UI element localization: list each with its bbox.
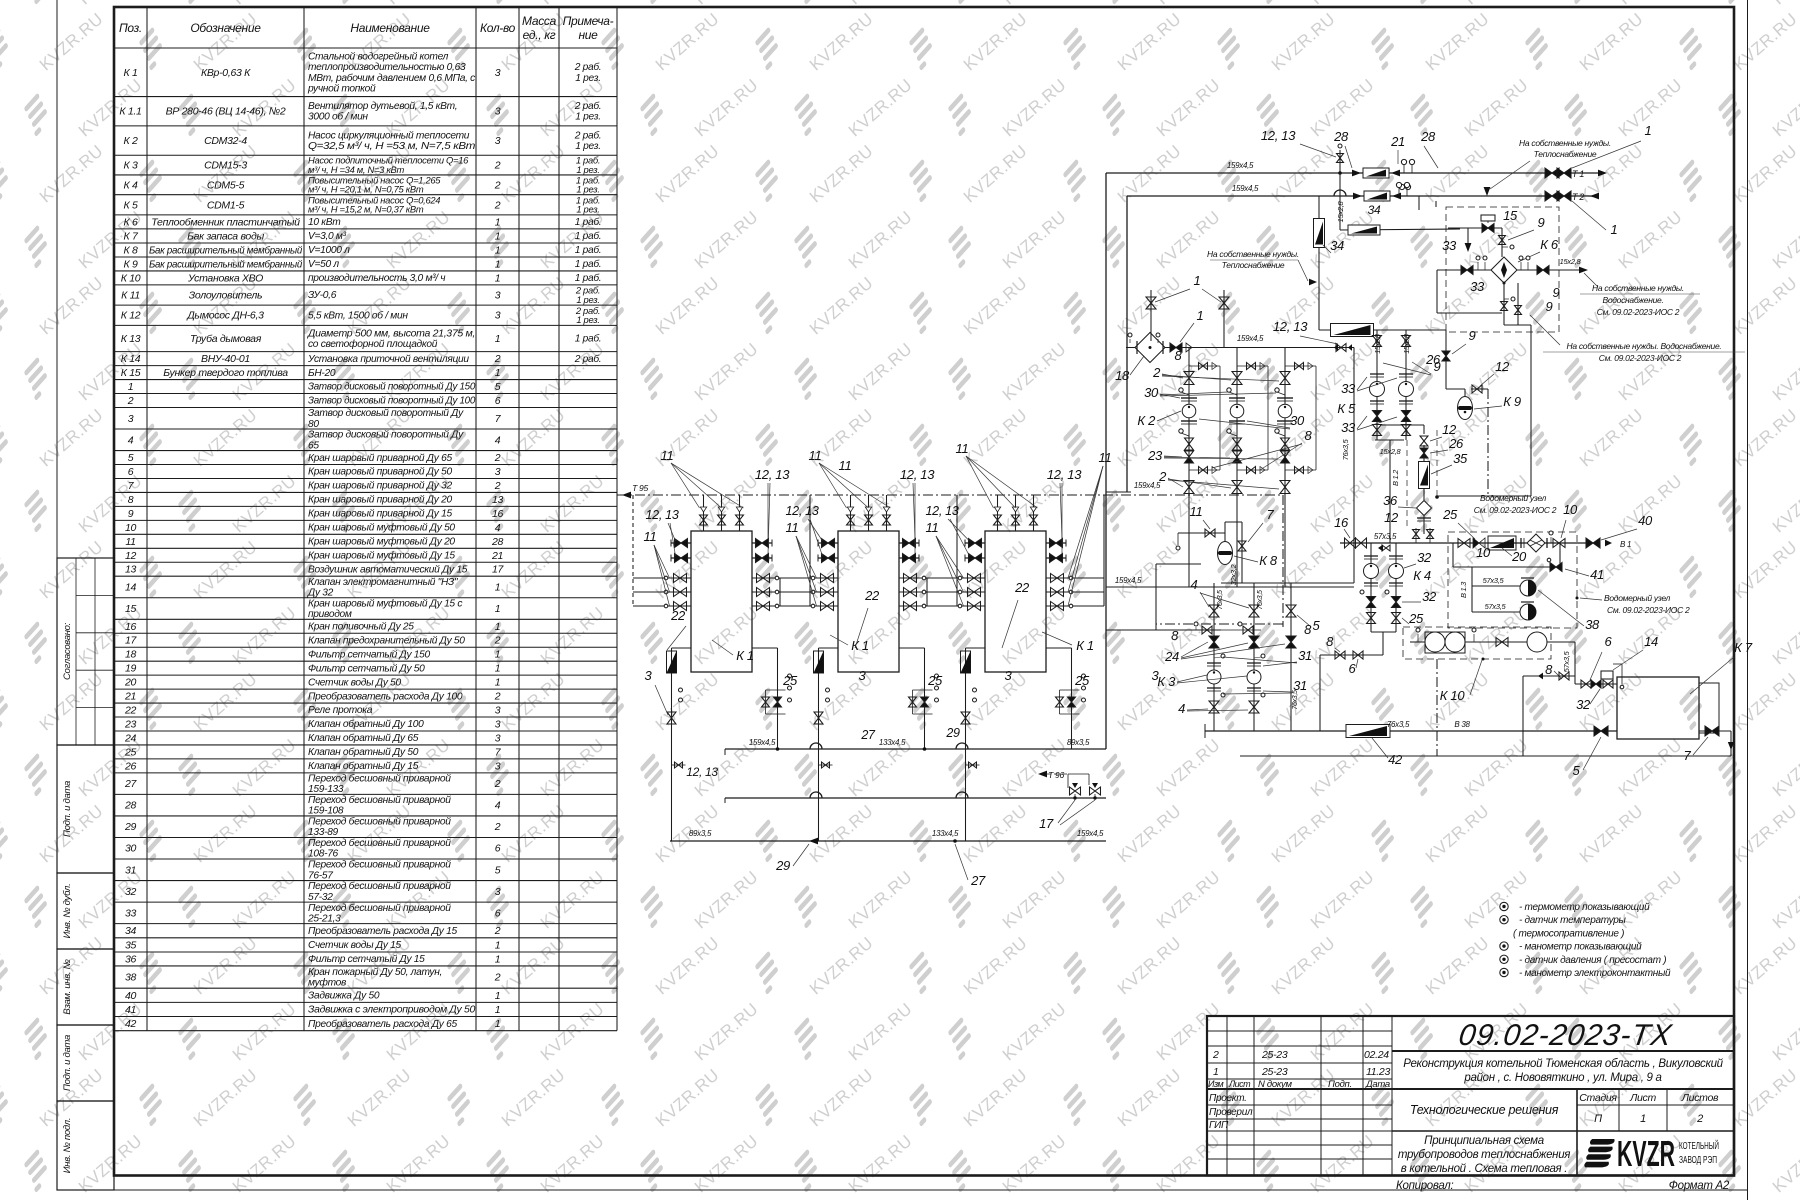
svg-text:5,5 кВт, 1500 об / мин: 5,5 кВт, 1500 об / мин — [308, 309, 408, 321]
svg-text:22: 22 — [1014, 580, 1030, 595]
svg-text:159х4,5: 159х4,5 — [1077, 829, 1104, 838]
svg-text:К 7: К 7 — [1734, 640, 1753, 655]
svg-text:6: 6 — [1605, 634, 1613, 649]
svg-text:К 4: К 4 — [1413, 568, 1431, 583]
svg-text:3: 3 — [495, 718, 501, 730]
svg-text:Затвор дисковый поворотный Ду: Затвор дисковый поворотный Ду — [308, 430, 464, 441]
svg-text:20: 20 — [124, 677, 137, 689]
svg-text:Дата: Дата — [1365, 1079, 1390, 1090]
svg-text:8: 8 — [1326, 634, 1334, 649]
svg-text:- датчик температуры: - датчик температуры — [1519, 915, 1627, 926]
svg-text:м³/ ч, Н =15,2 м, N=0,37 кВ: м³/ ч, Н =15,2 м, N=0,37 кВт — [308, 204, 424, 215]
svg-text:15х2,8: 15х2,8 — [1375, 334, 1382, 354]
svg-text:25: 25 — [1442, 507, 1458, 522]
svg-text:4: 4 — [495, 434, 501, 446]
svg-text:ед., кг: ед., кг — [523, 28, 556, 42]
svg-text:2: 2 — [494, 160, 501, 172]
svg-text:11: 11 — [839, 458, 852, 473]
svg-text:8: 8 — [1305, 428, 1313, 443]
svg-text:15: 15 — [125, 603, 137, 615]
svg-text:25-23: 25-23 — [1261, 1049, 1288, 1061]
svg-text:Воздушник автоматический Ду 15: Воздушник автоматический Ду 15 — [308, 564, 468, 575]
svg-text:31: 31 — [125, 864, 136, 876]
svg-text:К 15: К 15 — [121, 367, 141, 379]
svg-text:1 рез.: 1 рез. — [575, 112, 600, 123]
svg-text:1: 1 — [495, 953, 501, 965]
svg-text:Наименование: Наименование — [350, 21, 430, 35]
svg-text:Затвор дисковый поворотный Ду: Затвор дисковый поворотный Ду 150 — [308, 382, 476, 393]
svg-text:( термосопративление ): ( термосопративление ) — [1513, 928, 1624, 939]
svg-text:муфтов: муфтов — [308, 977, 347, 989]
svg-text:Труба дымовая: Труба дымовая — [190, 333, 262, 345]
svg-text:Проверил: Проверил — [1209, 1107, 1253, 1118]
svg-text:Кран шаровый муфтовый Ду 15: Кран шаровый муфтовый Ду 15 — [308, 549, 455, 561]
svg-text:1 рез.: 1 рез. — [575, 141, 600, 152]
svg-text:2: 2 — [494, 691, 501, 703]
svg-text:См. 09.02-2023-ИОС 2: См. 09.02-2023-ИОС 2 — [1607, 605, 1690, 615]
svg-text:27: 27 — [860, 728, 876, 742]
svg-text:Бак расширительный мембранный: Бак расширительный мембранный — [149, 244, 302, 256]
svg-text:8: 8 — [1545, 662, 1553, 677]
svg-text:40: 40 — [1638, 513, 1653, 528]
svg-text:Кран шаровый муфтовый Ду 20: Кран шаровый муфтовый Ду 20 — [308, 536, 455, 548]
svg-text:К 6: К 6 — [123, 216, 138, 228]
svg-text:30: 30 — [1290, 413, 1305, 428]
svg-text:1: 1 — [495, 581, 501, 593]
svg-text:1: 1 — [495, 333, 501, 345]
svg-text:80: 80 — [308, 419, 319, 430]
svg-text:1 раб.: 1 раб. — [575, 216, 602, 228]
svg-text:Переход бесшовный приварной: Переход бесшовный приварной — [308, 880, 451, 892]
svg-text:Кран пожарный Ду 50, латун,: Кран пожарный Ду 50, латун, — [308, 967, 442, 978]
svg-text:12, 13: 12, 13 — [1047, 467, 1082, 482]
svg-text:12: 12 — [1384, 510, 1399, 525]
svg-text:2: 2 — [1158, 469, 1167, 484]
svg-text:1: 1 — [495, 216, 501, 228]
svg-text:89х3,5: 89х3,5 — [1067, 738, 1090, 747]
svg-text:KVZR: KVZR — [1617, 1133, 1675, 1174]
svg-text:6: 6 — [128, 466, 134, 478]
svg-text:БН-20: БН-20 — [308, 368, 336, 379]
svg-text:Реле протока: Реле протока — [308, 705, 373, 716]
svg-text:К 2: К 2 — [1137, 413, 1156, 428]
svg-text:Подп.: Подп. — [1328, 1079, 1352, 1090]
svg-text:Водомерный узел: Водомерный узел — [1604, 593, 1670, 603]
svg-text:1: 1 — [495, 603, 501, 615]
svg-text:Кран шаровый муфтовый Ду 50: Кран шаровый муфтовый Ду 50 — [308, 522, 455, 534]
svg-text:1: 1 — [1194, 273, 1201, 288]
svg-text:8: 8 — [1171, 628, 1179, 643]
svg-text:6: 6 — [495, 843, 501, 855]
svg-text:1: 1 — [495, 1004, 501, 1016]
svg-text:Кран поливочный Ду 25: Кран поливочный Ду 25 — [308, 621, 414, 632]
svg-text:м³/ ч, Н =20,1 м, N=0,75 кВт: м³/ ч, Н =20,1 м, N=0,75 кВт — [308, 184, 424, 195]
svg-text:3000 об / мин: 3000 об / мин — [308, 111, 368, 123]
svg-text:33: 33 — [1341, 420, 1356, 435]
svg-text:В 1.2: В 1.2 — [1391, 469, 1400, 486]
svg-text:Затвор дисковый поворотный Ду: Затвор дисковый поворотный Ду 100 — [308, 396, 476, 407]
svg-text:Задвижка с электроприводом Ду: Задвижка с электроприводом Ду 50 — [308, 1005, 476, 1016]
svg-text:30: 30 — [1144, 385, 1159, 400]
svg-text:25: 25 — [927, 673, 943, 688]
svg-text:Согласовано:: Согласовано: — [62, 622, 73, 680]
svg-text:2 раб.: 2 раб. — [574, 100, 602, 112]
svg-text:26: 26 — [1448, 436, 1464, 451]
svg-text:57х3,5: 57х3,5 — [1485, 602, 1507, 611]
svg-text:ЗУ-0,6: ЗУ-0,6 — [308, 290, 337, 301]
svg-text:Копировал:: Копировал: — [1396, 1180, 1453, 1192]
svg-text:3: 3 — [495, 732, 501, 744]
svg-text:К 14: К 14 — [121, 353, 141, 365]
svg-text:2: 2 — [494, 452, 501, 464]
svg-text:35: 35 — [125, 939, 137, 951]
svg-text:19: 19 — [125, 663, 137, 675]
svg-text:1 раб.: 1 раб. — [575, 258, 602, 270]
svg-text:Обозначение: Обозначение — [190, 21, 261, 35]
svg-text:2 раб.: 2 раб. — [574, 129, 602, 141]
svg-text:21: 21 — [124, 691, 136, 703]
svg-text:9: 9 — [1469, 328, 1476, 343]
svg-text:Насос циркуляционный теплосети: Насос циркуляционный теплосети — [308, 130, 470, 141]
svg-text:9: 9 — [1538, 215, 1545, 230]
svg-text:На собственные нужды.: На собственные нужды. — [1519, 138, 1611, 148]
svg-text:См. 09.02-2023-ИОС 2: См. 09.02-2023-ИОС 2 — [1597, 307, 1680, 317]
svg-text:Водоснабжение.: Водоснабжение. — [1602, 295, 1663, 305]
svg-text:24: 24 — [124, 732, 137, 744]
svg-text:1 раб.: 1 раб. — [575, 244, 602, 256]
svg-text:17: 17 — [125, 635, 138, 647]
svg-text:15х2,8: 15х2,8 — [1560, 257, 1582, 266]
svg-text:9: 9 — [1546, 299, 1553, 314]
svg-text:Стадия: Стадия — [1579, 1092, 1617, 1104]
svg-text:11: 11 — [1099, 450, 1112, 465]
svg-text:Примеча-: Примеча- — [563, 14, 614, 28]
svg-text:3: 3 — [495, 886, 501, 898]
svg-text:Теплоснабжение: Теплоснабжение — [1534, 149, 1597, 159]
svg-text:159х4,5: 159х4,5 — [1227, 161, 1254, 170]
svg-text:1: 1 — [495, 677, 501, 689]
svg-text:12, 13: 12, 13 — [786, 504, 819, 518]
svg-text:34: 34 — [1368, 203, 1381, 217]
svg-text:32: 32 — [1576, 697, 1591, 712]
svg-text:Задвижка Ду 50: Задвижка Ду 50 — [308, 990, 380, 1001]
svg-text:12, 13: 12, 13 — [646, 508, 679, 522]
svg-text:41: 41 — [1590, 567, 1604, 582]
svg-text:27: 27 — [124, 778, 138, 790]
svg-text:КВр-0,63 К: КВр-0,63 К — [201, 67, 251, 79]
svg-text:ГИП: ГИП — [1209, 1120, 1229, 1131]
svg-text:К 10: К 10 — [121, 272, 141, 284]
svg-text:CDM15-3: CDM15-3 — [204, 160, 247, 172]
svg-text:Проект.: Проект. — [1209, 1093, 1247, 1104]
svg-text:16: 16 — [492, 508, 504, 520]
svg-text:1: 1 — [495, 939, 501, 951]
svg-text:2: 2 — [1212, 1049, 1219, 1061]
svg-text:ВНУ-40-01: ВНУ-40-01 — [201, 353, 250, 365]
svg-text:76-57: 76-57 — [308, 870, 333, 881]
svg-text:23: 23 — [124, 718, 137, 730]
svg-text:Теплоснабжение: Теплоснабжение — [1222, 260, 1285, 270]
svg-text:5: 5 — [495, 381, 501, 393]
svg-text:32: 32 — [1422, 589, 1437, 604]
svg-text:Т 96: Т 96 — [1048, 770, 1064, 780]
svg-text:5: 5 — [1573, 763, 1581, 778]
svg-text:32: 32 — [1417, 550, 1432, 565]
svg-text:1: 1 — [1213, 1066, 1219, 1078]
svg-text:Затвор дисковый поворотный Ду: Затвор дисковый поворотный Ду — [308, 408, 464, 419]
svg-text:32: 32 — [125, 886, 137, 898]
svg-text:34: 34 — [1330, 238, 1344, 253]
svg-text:2: 2 — [1152, 365, 1161, 380]
svg-text:МВт, рабочим давлением 0,6 М: МВт, рабочим давлением 0,6 МПа, с — [308, 72, 475, 84]
svg-text:1 рез.: 1 рез. — [576, 204, 599, 215]
svg-text:1: 1 — [495, 244, 501, 256]
svg-text:Кран шаровый муфтовый Ду 15: Кран шаровый муфтовый Ду 15 с — [308, 597, 462, 609]
svg-text:К 2: К 2 — [123, 135, 138, 147]
svg-text:4: 4 — [495, 800, 501, 812]
svg-text:133-89: 133-89 — [308, 827, 339, 838]
svg-text:38: 38 — [125, 972, 137, 984]
svg-text:К 3: К 3 — [123, 160, 138, 172]
svg-text:См. 09.02-2023-ИОС 2: См. 09.02-2023-ИОС 2 — [1599, 353, 1682, 363]
svg-text:76х3,5: 76х3,5 — [1387, 720, 1410, 729]
svg-text:11: 11 — [809, 448, 822, 463]
svg-text:CDM1-5: CDM1-5 — [207, 199, 245, 211]
svg-text:Изм: Изм — [1208, 1079, 1224, 1089]
svg-text:4: 4 — [1191, 577, 1198, 592]
svg-text:15х2,8: 15х2,8 — [1336, 201, 1345, 223]
svg-text:К 12: К 12 — [121, 310, 141, 322]
svg-text:Водомерный узел: Водомерный узел — [1480, 493, 1546, 503]
svg-text:К 7: К 7 — [123, 230, 139, 242]
svg-text:1: 1 — [495, 663, 501, 675]
svg-text:ние: ние — [578, 28, 598, 42]
svg-text:Бак запаса воды: Бак запаса воды — [187, 230, 264, 242]
svg-text:15х2,8: 15х2,8 — [1404, 334, 1411, 354]
svg-text:1: 1 — [495, 258, 501, 270]
svg-text:1 раб.: 1 раб. — [575, 333, 602, 345]
svg-text:10 кВт: 10 кВт — [308, 217, 341, 228]
svg-text:Установка приточной вентиляции: Установка приточной вентиляции — [307, 354, 469, 365]
svg-text:Клапан обратный Ду 50: Клапан обратный Ду 50 — [308, 746, 419, 758]
svg-text:25: 25 — [1408, 611, 1424, 626]
svg-text:22: 22 — [124, 705, 137, 717]
svg-text:трубопроводов теплоснабжения: трубопроводов теплоснабжения — [1398, 1149, 1570, 1161]
svg-text:12, 13: 12, 13 — [926, 504, 959, 518]
svg-text:42: 42 — [1388, 752, 1403, 767]
svg-text:159х4,5: 159х4,5 — [1115, 576, 1142, 585]
svg-text:9: 9 — [1553, 285, 1560, 300]
svg-text:30: 30 — [125, 843, 137, 855]
svg-text:V=50 л: V=50 л — [308, 259, 339, 270]
svg-text:3: 3 — [495, 290, 501, 302]
svg-text:Инв. № подл.: Инв. № подл. — [62, 1118, 73, 1173]
svg-text:Клапан обратный Ду 15: Клапан обратный Ду 15 — [308, 760, 419, 772]
svg-text:- датчик давления ( пресоста: - датчик давления ( пресостат ) — [1519, 955, 1666, 966]
svg-text:22: 22 — [864, 588, 880, 603]
svg-text:76х3,5: 76х3,5 — [1257, 590, 1264, 610]
svg-text:17: 17 — [492, 564, 505, 576]
svg-text:2: 2 — [494, 925, 501, 937]
svg-text:10: 10 — [1563, 502, 1578, 517]
svg-text:11: 11 — [661, 448, 674, 463]
svg-text:11: 11 — [644, 529, 657, 544]
svg-text:Золоуловитель: Золоуловитель — [189, 290, 262, 302]
svg-text:ВР 280-46 (ВЦ 14-46), №2: ВР 280-46 (ВЦ 14-46), №2 — [166, 106, 286, 118]
svg-text:12: 12 — [1442, 422, 1457, 437]
svg-text:V=1000 л: V=1000 л — [308, 245, 350, 256]
svg-text:23: 23 — [1147, 448, 1163, 463]
svg-text:Фильтр сетчатый Ду 15: Фильтр сетчатый Ду 15 — [308, 954, 425, 965]
svg-text:Кран шаровый приварной Ду 32: Кран шаровый приварной Ду 32 — [308, 481, 452, 492]
svg-text:Формат А2: Формат А2 — [1669, 1180, 1730, 1192]
svg-text:Т 2: Т 2 — [1572, 192, 1584, 202]
svg-text:133х4,5: 133х4,5 — [879, 738, 906, 747]
svg-text:4: 4 — [1178, 701, 1185, 716]
svg-text:Бункер твердого топлива: Бункер твердого топлива — [163, 367, 288, 379]
svg-text:17: 17 — [1039, 816, 1054, 831]
svg-text:57-32: 57-32 — [308, 892, 333, 903]
svg-text:Лист: Лист — [1629, 1092, 1656, 1104]
svg-text:2: 2 — [494, 353, 501, 365]
svg-text:13: 13 — [492, 494, 504, 506]
svg-text:Переход бесшовный приварной: Переход бесшовный приварной — [308, 773, 451, 785]
svg-text:09.02-2023-ТХ: 09.02-2023-ТХ — [1457, 1019, 1675, 1052]
svg-text:25: 25 — [1074, 673, 1090, 688]
svg-text:1: 1 — [1611, 222, 1618, 237]
svg-text:40: 40 — [125, 990, 137, 1002]
svg-text:3: 3 — [495, 135, 501, 147]
svg-text:КОТЕЛЬНЫЙ: КОТЕЛЬНЫЙ — [1679, 1139, 1719, 1152]
svg-text:1: 1 — [495, 621, 501, 633]
svg-text:3: 3 — [859, 668, 867, 683]
svg-text:5: 5 — [495, 864, 501, 876]
svg-text:1: 1 — [1645, 123, 1652, 138]
svg-text:33: 33 — [125, 907, 137, 919]
svg-text:18: 18 — [125, 649, 137, 661]
svg-text:2: 2 — [494, 635, 501, 647]
svg-text:02.24: 02.24 — [1364, 1049, 1389, 1061]
svg-text:12, 13: 12, 13 — [1273, 319, 1308, 334]
svg-text:89х3,5: 89х3,5 — [689, 829, 712, 838]
svg-text:Ду 32: Ду 32 — [307, 587, 334, 598]
svg-text:К 6: К 6 — [1540, 237, 1559, 252]
svg-text:К 10: К 10 — [1440, 688, 1466, 703]
svg-text:1: 1 — [495, 272, 501, 284]
svg-text:2 раб.: 2 раб. — [574, 353, 602, 365]
svg-text:76х3,5: 76х3,5 — [1341, 439, 1350, 461]
svg-text:133х4,5: 133х4,5 — [932, 829, 959, 838]
svg-text:35: 35 — [1453, 451, 1468, 466]
svg-text:12, 13: 12, 13 — [755, 467, 790, 482]
svg-text:1: 1 — [1197, 308, 1204, 323]
svg-text:7: 7 — [1267, 507, 1275, 522]
svg-text:Q=32,5 м³/ ч, Н =53 м, N=7,5: Q=32,5 м³/ ч, Н =53 м, N=7,5 кВт — [308, 141, 476, 152]
svg-text:3: 3 — [495, 705, 501, 717]
svg-text:Кран шаровый приварной Ду 15: Кран шаровый приварной Ду 15 — [308, 509, 452, 520]
svg-text:Счетчик воды Ду 15: Счетчик воды Ду 15 — [308, 940, 402, 951]
svg-text:8: 8 — [1175, 348, 1183, 363]
svg-text:9: 9 — [1434, 359, 1441, 374]
svg-text:25: 25 — [782, 673, 798, 688]
svg-text:36: 36 — [1383, 493, 1398, 508]
svg-text:Вентилятор дутьевой, 1,5 кВт,: Вентилятор дутьевой, 1,5 кВт, — [308, 101, 457, 112]
svg-text:28: 28 — [124, 800, 137, 812]
svg-text:1 рез.: 1 рез. — [576, 184, 599, 195]
svg-text:Кран шаровый приварной Ду 65: Кран шаровый приварной Ду 65 — [308, 453, 452, 464]
svg-text:2: 2 — [494, 972, 501, 984]
svg-text:К 1: К 1 — [736, 648, 754, 663]
svg-text:Листов: Листов — [1681, 1092, 1719, 1104]
svg-text:3: 3 — [495, 310, 501, 322]
svg-text:9: 9 — [128, 508, 134, 520]
svg-text:К 11: К 11 — [121, 290, 140, 302]
svg-text:Т 1: Т 1 — [1572, 169, 1584, 179]
svg-text:производительность 3,0 м³/ ч: производительность 3,0 м³/ ч — [308, 273, 446, 284]
svg-text:2: 2 — [494, 778, 501, 790]
svg-text:К 1: К 1 — [123, 67, 137, 79]
svg-text:6: 6 — [495, 395, 501, 407]
svg-text:15х2,8: 15х2,8 — [1380, 447, 1402, 456]
svg-text:29: 29 — [124, 821, 137, 833]
svg-text:Счетчик воды Ду 50: Счетчик воды Ду 50 — [308, 677, 402, 688]
svg-text:Установка ХВО: Установка ХВО — [187, 272, 263, 284]
svg-text:57х3,5: 57х3,5 — [1483, 576, 1505, 585]
svg-text:1: 1 — [1640, 1113, 1646, 1125]
svg-text:Бак расширительный мембранный: Бак расширительный мембранный — [149, 258, 302, 270]
svg-text:Клапан электромагнитный "НЗ": Клапан электромагнитный "НЗ" — [308, 577, 458, 588]
svg-text:4: 4 — [128, 434, 134, 446]
svg-text:20: 20 — [1511, 549, 1527, 564]
svg-text:38: 38 — [1585, 617, 1600, 632]
svg-text:Преобразователь расхода Ду 65: Преобразователь расхода Ду 65 — [308, 1018, 457, 1030]
svg-text:57х3,5: 57х3,5 — [1562, 651, 1571, 673]
svg-text:Теплообменник пластинчатый: Теплообменник пластинчатый — [151, 216, 300, 228]
svg-text:27: 27 — [970, 873, 986, 888]
svg-text:8: 8 — [1304, 622, 1312, 637]
svg-text:159х4,5: 159х4,5 — [1134, 481, 1161, 490]
svg-text:1: 1 — [495, 649, 501, 661]
svg-text:м³/ ч, Н =34 м, N=3 кВт: м³/ ч, Н =34 м, N=3 кВт — [308, 164, 404, 175]
svg-text:В 1: В 1 — [1620, 540, 1631, 549]
svg-text:12, 13: 12, 13 — [900, 467, 935, 482]
svg-text:К 8: К 8 — [1259, 553, 1278, 568]
svg-text:Переход бесшовный приварной: Переход бесшовный приварной — [308, 816, 451, 828]
svg-text:Переход бесшовный приварной: Переход бесшовный приварной — [308, 859, 451, 871]
svg-text:42: 42 — [125, 1018, 137, 1030]
svg-text:1 рез.: 1 рез. — [575, 73, 600, 84]
svg-text:1 рез.: 1 рез. — [576, 164, 599, 175]
svg-text:Поз.: Поз. — [119, 21, 142, 35]
svg-text:Принципиальная схема: Принципиальная схема — [1424, 1135, 1544, 1147]
svg-text:12: 12 — [1495, 359, 1510, 374]
svg-text:25: 25 — [124, 746, 137, 758]
svg-text:К 1: К 1 — [1076, 638, 1094, 653]
svg-text:11: 11 — [786, 520, 799, 535]
svg-text:Лист: Лист — [1228, 1079, 1251, 1089]
svg-text:1: 1 — [495, 1018, 501, 1030]
svg-text:К 3: К 3 — [1157, 674, 1176, 689]
svg-text:33: 33 — [1341, 381, 1356, 396]
svg-text:район , с. Нововяткино , ул: район , с. Нововяткино , ул. Мира , 9 а — [1463, 1072, 1661, 1084]
svg-text:К 13: К 13 — [121, 333, 141, 345]
svg-text:36: 36 — [125, 953, 137, 965]
svg-text:Кол-во: Кол-во — [480, 21, 516, 35]
svg-text:В 38: В 38 — [1454, 720, 1470, 729]
svg-text:10: 10 — [1476, 545, 1491, 560]
svg-text:Кран шаровый приварной Ду 20: Кран шаровый приварной Ду 20 — [308, 495, 452, 506]
svg-text:13: 13 — [125, 564, 137, 576]
